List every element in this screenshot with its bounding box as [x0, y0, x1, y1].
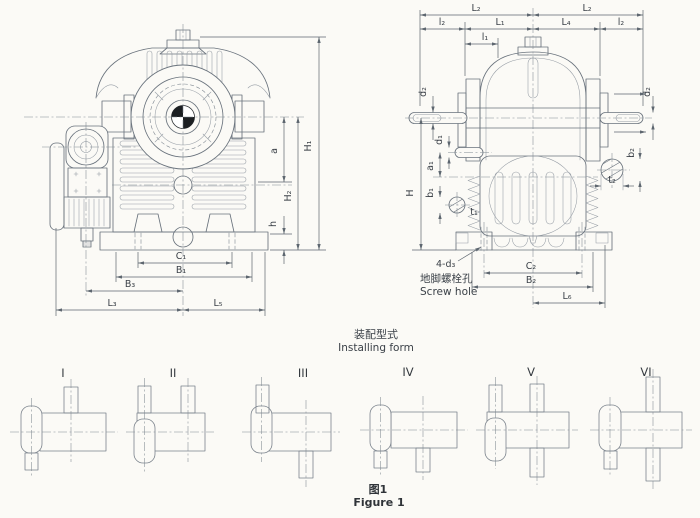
dim-label-l2-left: l₂ [439, 17, 446, 28]
dim-label-L5: L₅ [213, 298, 222, 309]
dim-label-b2: b₂ [626, 148, 637, 158]
dim-label-B1: B₁ [176, 265, 187, 276]
installing-form-IV: IV [360, 365, 468, 480]
dim-label-t1: t₁ [470, 207, 478, 218]
dim-label-H: H [405, 189, 416, 196]
side-view: L₂ L₂ l₂ L₁ L₄ l₂ l₁ d₂ d₂ d₁ a₁ b₁ t₁ H… [405, 3, 653, 308]
dim-label-L1: L₁ [495, 17, 504, 28]
dim-label-d2-left: d₂ [418, 87, 429, 97]
installing-form-III: III [242, 366, 340, 487]
dim-label-t2: t₂ [608, 175, 616, 186]
screw-hole-label-cn: 地脚螺栓孔 [420, 272, 473, 285]
side-worm-housing [409, 79, 643, 161]
installing-form-title-en: Installing form [338, 342, 414, 354]
dim-label-a1: a₁ [425, 161, 436, 171]
dim-label-b1: b₁ [425, 188, 436, 198]
figure-caption: 图1 Figure 1 [353, 483, 404, 509]
installing-form-V: V [476, 365, 578, 485]
side-dimensions: L₂ L₂ l₂ L₁ L₄ l₂ l₁ d₂ d₂ d₁ a₁ b₁ t₁ H… [405, 3, 653, 308]
dim-label-C2: C₂ [526, 261, 537, 272]
front-view: H₁ H₂ a h C₁ B₁ B₃ L₃ L₅ [24, 24, 326, 316]
dim-label-C1: C₁ [176, 251, 187, 262]
form-numeral-III: III [298, 366, 308, 380]
dim-label-L6: L₆ [562, 291, 571, 302]
dim-label-L2-left: L₂ [471, 3, 480, 14]
dim-label-L3: L₃ [107, 298, 116, 309]
dim-label-a: a [269, 148, 280, 154]
dim-label-L4: L₄ [561, 17, 570, 28]
dim-label-l1: l₁ [482, 32, 489, 43]
dim-label-H1: H₁ [303, 140, 314, 151]
installing-form-VI: VI [590, 365, 692, 489]
installing-form-I: I [10, 366, 118, 477]
drawing-canvas: H₁ H₂ a h C₁ B₁ B₃ L₃ L₅ [0, 0, 700, 518]
dim-label-H2: H₂ [283, 190, 294, 201]
form-numeral-V: V [527, 365, 535, 379]
caption-cn: 图1 [369, 483, 388, 496]
dim-label-L2-right: L₂ [582, 3, 591, 14]
form-numeral-I: I [61, 366, 64, 380]
installing-forms: 装配型式 Installing form I II [10, 327, 692, 489]
form-numeral-IV: IV [402, 365, 413, 379]
dim-label-l2-right: l₂ [618, 17, 625, 28]
figure-1-technical-drawing: H₁ H₂ a h C₁ B₁ B₃ L₃ L₅ [0, 0, 700, 518]
dim-label-B3: B₃ [125, 279, 136, 290]
installing-form-title-cn: 装配型式 [354, 327, 398, 341]
caption-en: Figure 1 [353, 496, 404, 509]
installing-form-II: II [126, 366, 214, 472]
dim-label-d2-right: d₂ [642, 87, 653, 97]
form-numeral-II: II [170, 366, 177, 380]
dim-label-h: h [268, 221, 279, 227]
screw-hole-label-en: Screw hole [420, 286, 477, 298]
front-centerlines [24, 24, 304, 316]
dim-label-B2: B₂ [526, 275, 537, 286]
bolt-hole-note: 4-d₃ [436, 259, 456, 270]
dim-label-d1: d₁ [434, 135, 445, 145]
